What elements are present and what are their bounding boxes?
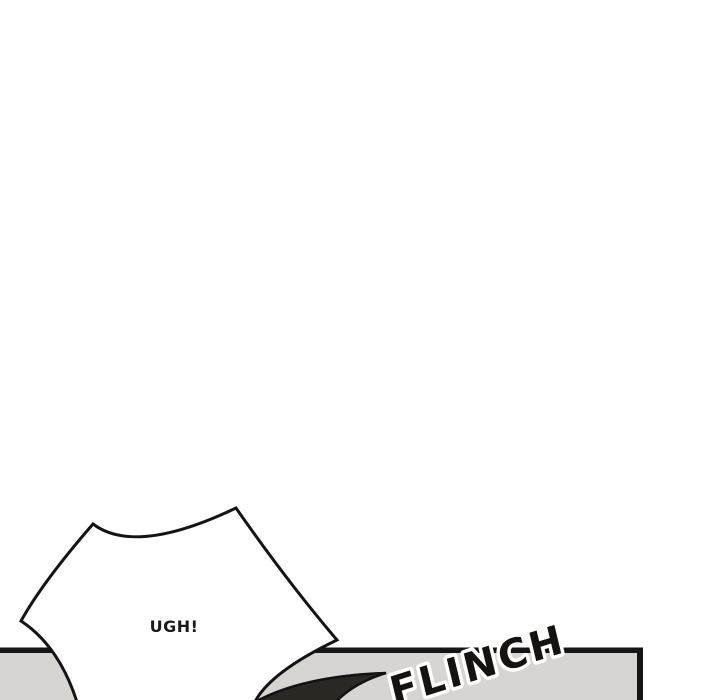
- speech-bubble-text: UGH!: [150, 617, 199, 636]
- panel-border-right: [637, 648, 643, 700]
- comic-art-canvas: UGH! FLINCH: [0, 0, 720, 700]
- webtoon-strip: UGH! FLINCH: [0, 0, 720, 700]
